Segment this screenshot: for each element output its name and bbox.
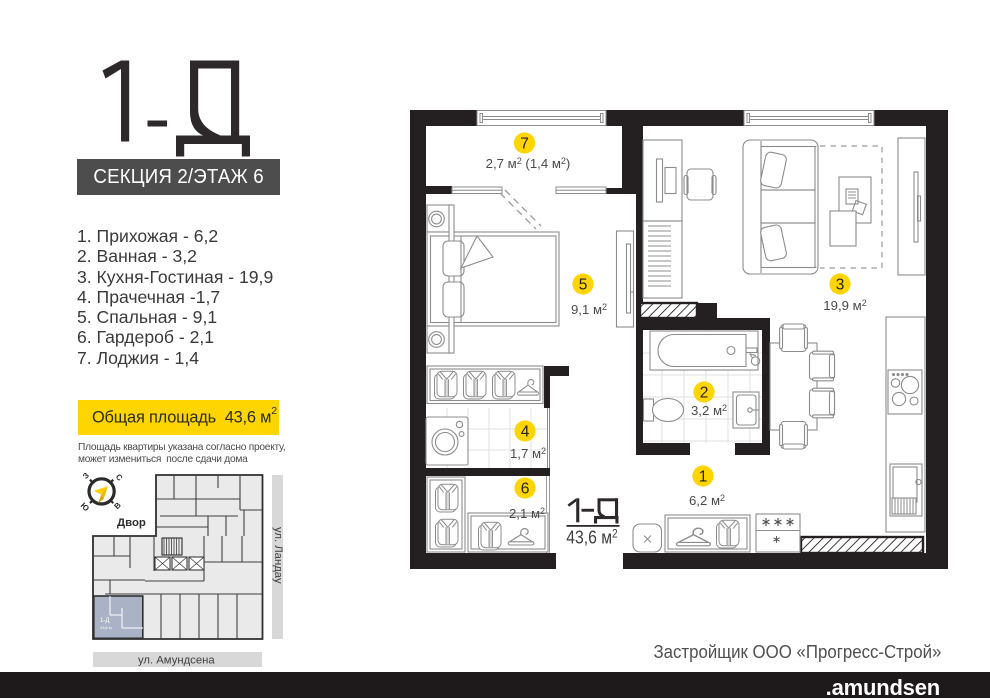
svg-text:7: 7 — [520, 136, 529, 153]
svg-text:2: 2 — [700, 385, 709, 402]
svg-text:6,2 м2: 6,2 м2 — [689, 493, 725, 508]
svg-text:4: 4 — [521, 424, 530, 441]
svg-text:1: 1 — [699, 469, 708, 486]
svg-text:9,1 м2: 9,1 м2 — [571, 302, 607, 317]
svg-text:1,7 м2: 1,7 м2 — [510, 446, 546, 461]
svg-text:3: 3 — [836, 277, 845, 294]
svg-text:3,2 м2: 3,2 м2 — [691, 403, 727, 418]
svg-text:6: 6 — [521, 481, 530, 498]
svg-text:2,7 м2 (1,4 м2): 2,7 м2 (1,4 м2) — [486, 156, 571, 171]
svg-text:2,1 м2: 2,1 м2 — [509, 506, 545, 521]
svg-text:43,6 м2: 43,6 м2 — [566, 526, 617, 548]
svg-text:19,9 м2: 19,9 м2 — [823, 298, 866, 313]
svg-text:5: 5 — [579, 277, 588, 294]
